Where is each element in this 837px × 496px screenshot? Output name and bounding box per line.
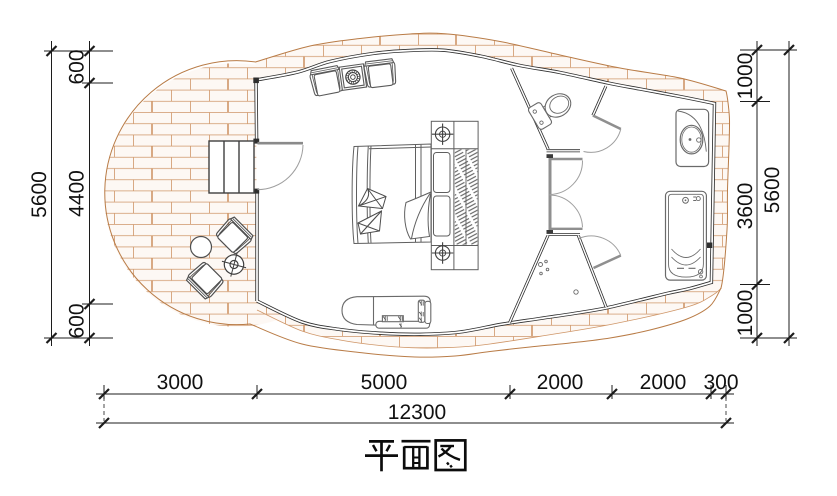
svg-text:300: 300 xyxy=(703,371,738,394)
svg-text:1000: 1000 xyxy=(734,290,757,337)
svg-text:600: 600 xyxy=(66,49,89,84)
svg-text:5600: 5600 xyxy=(761,167,784,214)
svg-text:3000: 3000 xyxy=(157,371,204,394)
svg-text:1000: 1000 xyxy=(734,53,757,100)
svg-text:2000: 2000 xyxy=(537,371,584,394)
svg-text:4400: 4400 xyxy=(66,170,89,217)
svg-text:600: 600 xyxy=(66,303,89,338)
svg-text:12300: 12300 xyxy=(388,401,446,424)
svg-text:2000: 2000 xyxy=(640,371,687,394)
svg-text:5000: 5000 xyxy=(361,371,408,394)
svg-text:5600: 5600 xyxy=(28,171,51,218)
svg-text:3600: 3600 xyxy=(734,183,757,230)
